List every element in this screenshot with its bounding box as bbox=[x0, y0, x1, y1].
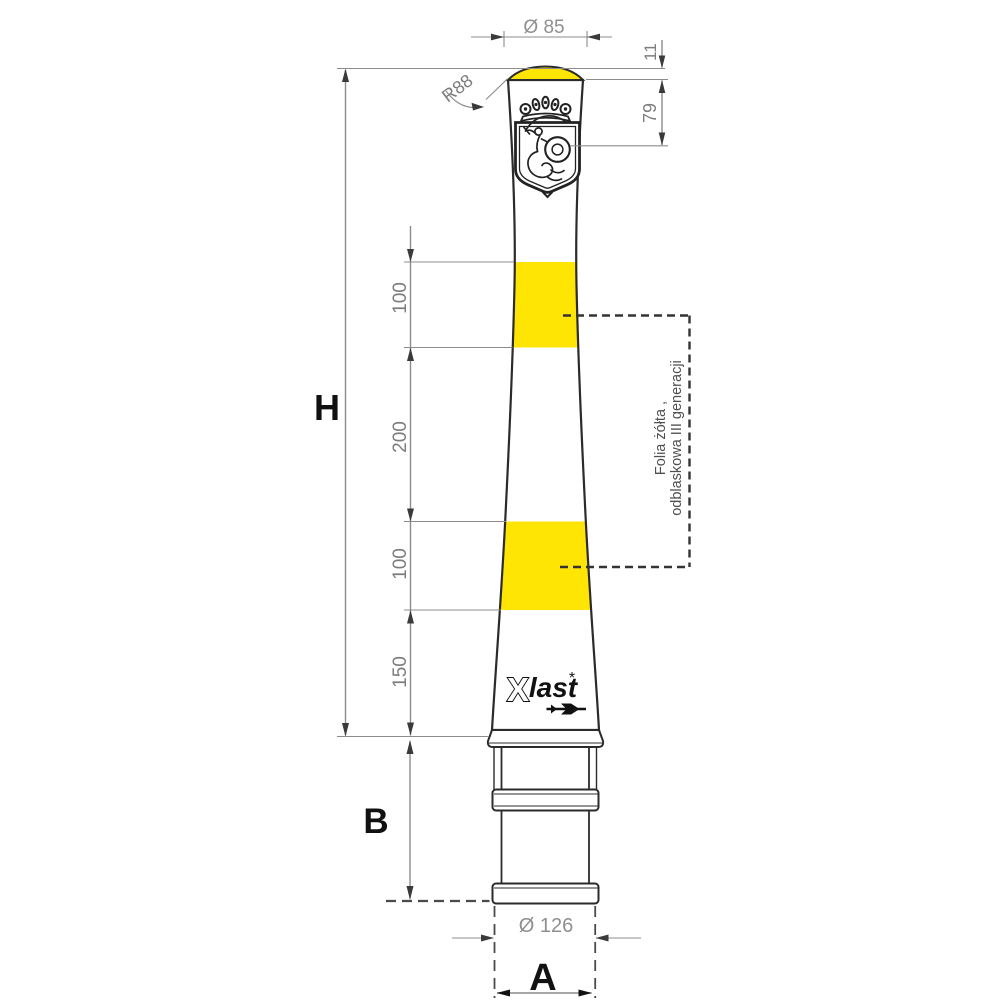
bollard-drawing: X last * bbox=[0, 0, 1000, 1000]
foil-note-line2: odblaskowa III generacji bbox=[669, 360, 685, 516]
dim-base-width-label: A bbox=[529, 957, 556, 999]
base-collar bbox=[488, 730, 603, 747]
dim-cap-height-value: 11 bbox=[641, 43, 660, 61]
logo-reg-mark: * bbox=[569, 670, 575, 687]
base-rib-upper bbox=[493, 790, 599, 811]
dim-embed-depth bbox=[386, 740, 490, 901]
reflective-band-bottom bbox=[478, 522, 612, 611]
dim-band-gap-value: 200 bbox=[390, 421, 411, 453]
dim-crest-offset-value: 79 bbox=[640, 103, 660, 123]
dim-below-band-value: 150 bbox=[390, 656, 411, 688]
dim-band-bottom-value: 100 bbox=[390, 548, 411, 580]
base-rib-lower bbox=[493, 884, 599, 904]
bollard-base bbox=[488, 730, 603, 904]
dim-overall-height-label: H bbox=[314, 387, 340, 428]
dim-embed-depth-label: B bbox=[363, 802, 388, 841]
dim-top-diameter-value: Ø 85 bbox=[523, 17, 564, 38]
logo-x-mark: X bbox=[507, 671, 529, 708]
dim-top-radius-value: R88 bbox=[438, 70, 476, 106]
foil-note-line1: Folia żółta , bbox=[653, 401, 669, 475]
dim-base-diameter-value: Ø 126 bbox=[519, 915, 573, 937]
technical-drawing-canvas: X last * bbox=[0, 0, 1000, 1000]
reflective-band-top bbox=[478, 262, 612, 348]
dim-band-top-value: 100 bbox=[390, 282, 411, 314]
